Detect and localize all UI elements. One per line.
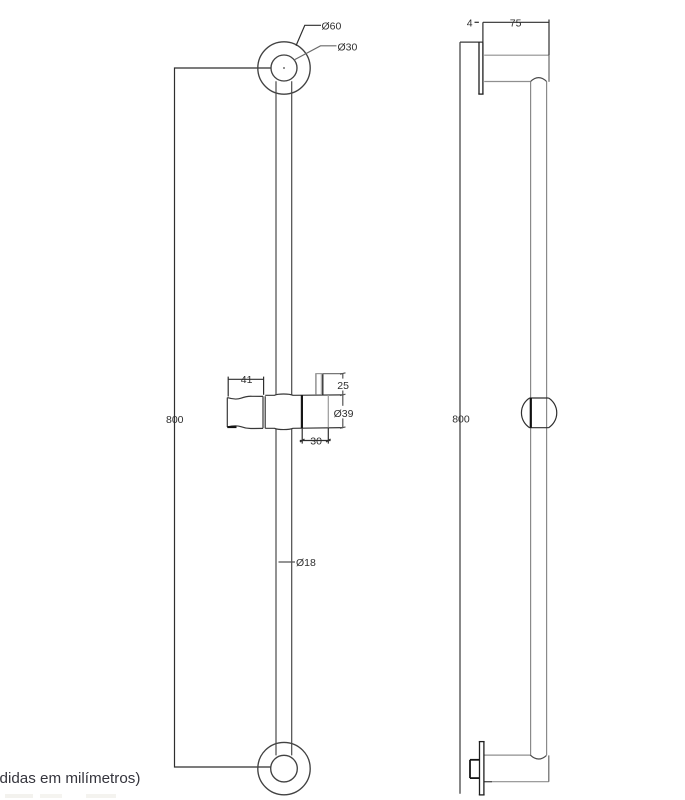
svg-text:Ø18: Ø18 <box>296 557 316 569</box>
svg-text:30: 30 <box>310 435 322 447</box>
svg-text:Ø30: Ø30 <box>338 41 358 53</box>
svg-text:Ø60: Ø60 <box>322 21 342 33</box>
svg-text:41: 41 <box>241 374 253 386</box>
svg-text:Ø39: Ø39 <box>334 408 354 420</box>
svg-text:75: 75 <box>510 17 522 29</box>
svg-text:25: 25 <box>337 380 349 392</box>
svg-text:800: 800 <box>166 414 184 426</box>
svg-text:800: 800 <box>452 414 470 426</box>
svg-text:4: 4 <box>467 17 473 29</box>
